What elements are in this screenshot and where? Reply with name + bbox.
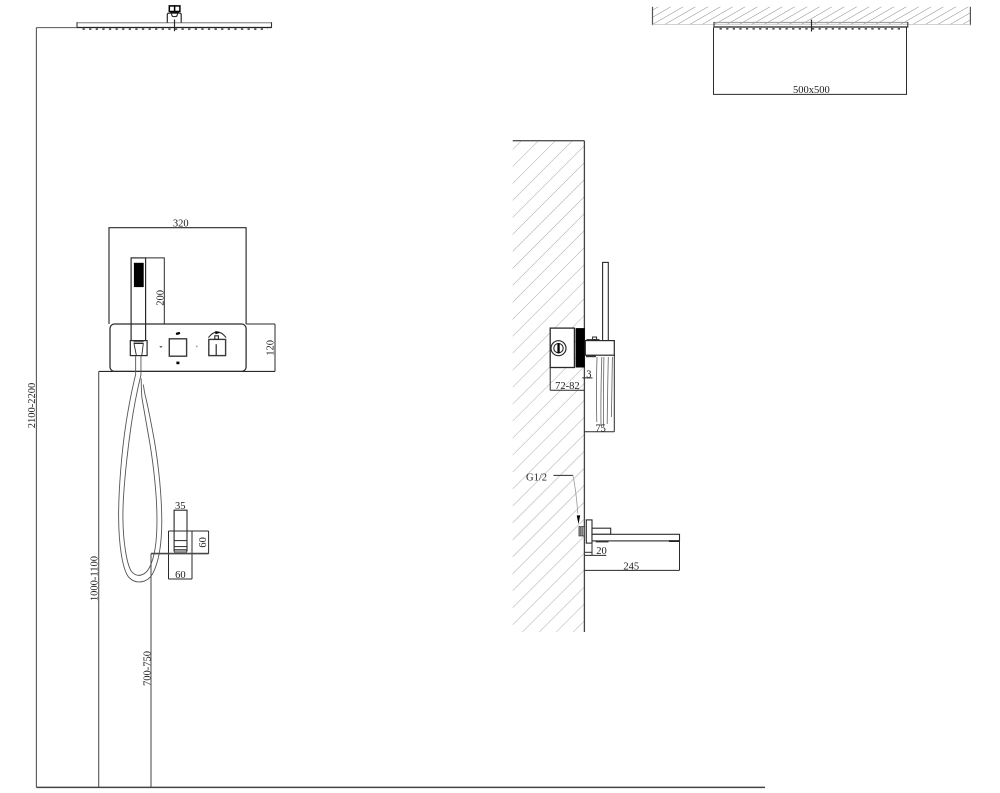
svg-text:500x500: 500x500 bbox=[793, 85, 830, 96]
svg-text:60: 60 bbox=[198, 537, 209, 548]
svg-text:75: 75 bbox=[595, 424, 606, 435]
svg-text:200: 200 bbox=[156, 290, 167, 306]
svg-text:3: 3 bbox=[586, 370, 591, 381]
svg-text:1000-1100: 1000-1100 bbox=[90, 556, 101, 601]
svg-text:120: 120 bbox=[266, 340, 277, 356]
svg-text:72-82: 72-82 bbox=[555, 381, 580, 392]
svg-text:320: 320 bbox=[173, 218, 189, 229]
svg-text:2100-2200: 2100-2200 bbox=[27, 383, 38, 429]
svg-text:700-750: 700-750 bbox=[142, 651, 153, 686]
svg-text:20: 20 bbox=[596, 546, 607, 557]
svg-text:245: 245 bbox=[623, 561, 639, 572]
svg-text:60: 60 bbox=[175, 570, 186, 581]
svg-text:G1/2: G1/2 bbox=[526, 473, 547, 484]
svg-text:35: 35 bbox=[175, 501, 186, 512]
